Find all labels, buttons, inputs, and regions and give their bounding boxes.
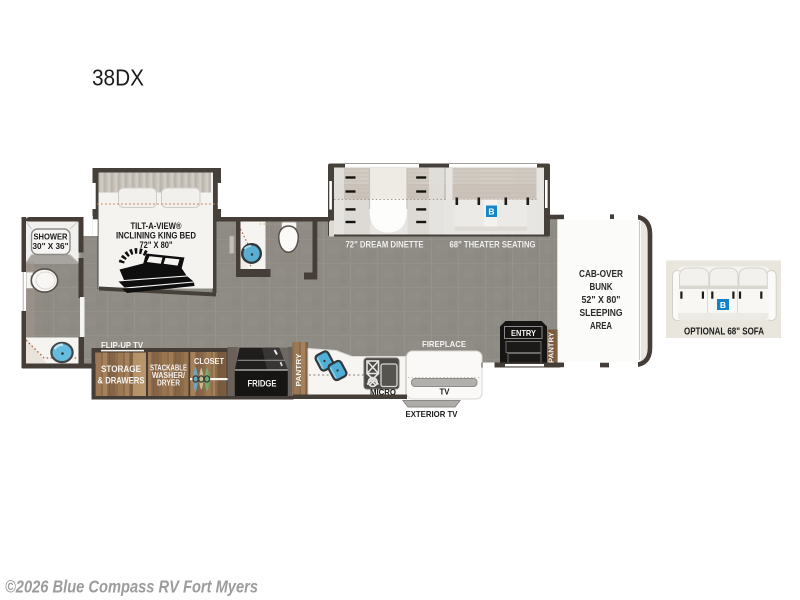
svg-text:FIREPLACE: FIREPLACE bbox=[422, 339, 466, 349]
svg-text:ENTRY: ENTRY bbox=[511, 328, 536, 338]
svg-text:PANTRY: PANTRY bbox=[294, 354, 303, 387]
svg-text:B: B bbox=[488, 207, 494, 217]
svg-text:CLOSET: CLOSET bbox=[194, 356, 225, 366]
svg-text:FLIP-UP TV: FLIP-UP TV bbox=[101, 340, 143, 350]
svg-text:& DRAWERS: & DRAWERS bbox=[98, 376, 145, 386]
svg-text:DRYER: DRYER bbox=[157, 379, 180, 388]
svg-text:CAB-OVER: CAB-OVER bbox=[579, 268, 623, 280]
svg-text:BUNK: BUNK bbox=[590, 281, 613, 293]
svg-text:B: B bbox=[720, 300, 726, 310]
svg-text:PANTRY: PANTRY bbox=[547, 332, 556, 363]
svg-text:TILT-A-VIEW®: TILT-A-VIEW® bbox=[131, 221, 182, 231]
svg-text:72" X 80": 72" X 80" bbox=[140, 240, 173, 250]
svg-text:AREA: AREA bbox=[590, 320, 612, 332]
svg-text:38DX: 38DX bbox=[92, 65, 144, 91]
svg-text:72" DREAM DINETTE: 72" DREAM DINETTE bbox=[346, 240, 424, 251]
svg-text:68" THEATER SEATING: 68" THEATER SEATING bbox=[450, 240, 536, 251]
svg-text:STORAGE: STORAGE bbox=[101, 364, 141, 374]
svg-text:EXTERIOR TV: EXTERIOR TV bbox=[406, 409, 458, 419]
svg-text:TV: TV bbox=[440, 387, 450, 397]
svg-text:SHOWER: SHOWER bbox=[34, 232, 68, 242]
svg-text:52" X 80": 52" X 80" bbox=[582, 294, 621, 306]
svg-text:OPTIONAL 68" SOFA: OPTIONAL 68" SOFA bbox=[684, 327, 764, 338]
svg-text:INCLINING KING BED: INCLINING KING BED bbox=[116, 231, 196, 241]
svg-text:©2026 Blue Compass RV Fort Mye: ©2026 Blue Compass RV Fort Myers bbox=[5, 577, 258, 597]
svg-text:SLEEPING: SLEEPING bbox=[580, 307, 623, 319]
svg-text:30" X 36": 30" X 36" bbox=[33, 241, 69, 251]
svg-text:FRIDGE: FRIDGE bbox=[248, 379, 277, 389]
